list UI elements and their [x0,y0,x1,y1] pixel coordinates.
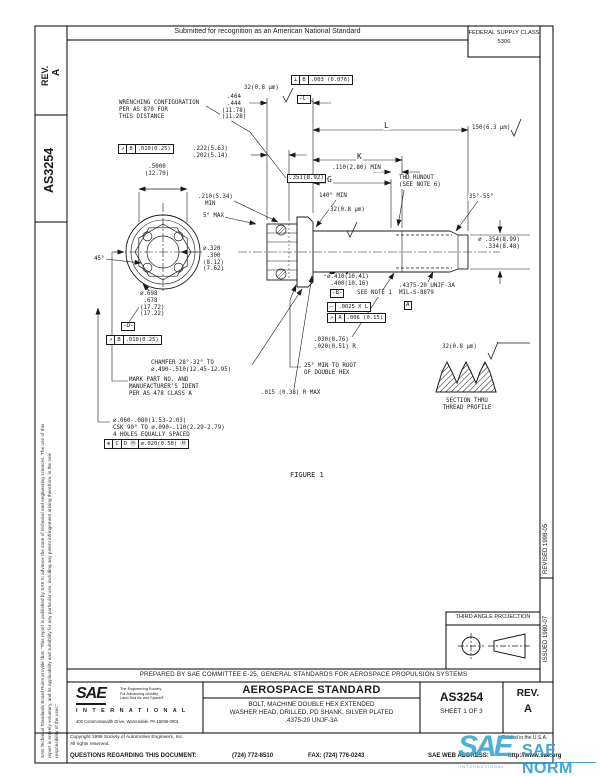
holes-note: ⌀.060-.080(1.53-2.03) CSK 90° TO ⌀.090-.… [112,418,226,438]
doc-number-vertical: AS3254 [42,148,56,193]
sae-norm-watermark: SAE INTERNATIONAL SAE NORM [438,736,600,776]
titleblock-rev-value: A [503,703,553,715]
datum-c: -C- [297,95,311,104]
watermark-international: INTERNATIONAL [460,764,505,769]
document-number: AS3254 [420,690,503,704]
angle-35-55: 35°-55° [468,194,494,201]
fcf-position-holes-cell: D Ⓜ [121,439,139,449]
dim-G: G [326,175,333,184]
fcf-perpendicularity-cell: .003 (0.076) [308,75,354,85]
document-title-line3: .4375-20 UNJF-3A [203,717,420,724]
sae-logo-international: I N T E R N A T I O N A L [76,708,187,714]
see-note-1: SEE NOTE 1 [356,290,393,297]
copyright-line2: All rights reserved. [70,742,110,747]
fcf-runout-wrench-cell: .010(0.25) [135,144,174,154]
legal-text-line2: report is entirely voluntary, and its ap… [47,453,52,758]
datum-a: A [404,301,412,310]
sae-logo-address: 400 Commonwealth Drive, Warrendale, PA 1… [76,719,179,724]
dim-L: L [383,121,390,130]
angle-45: 45° [93,256,105,263]
datum-b: -B- [330,289,344,298]
dim-210-min: .210(5.34) MIN [197,194,234,208]
dim-698: ⌀.698 .678 (17.72) (17.22) [139,291,165,318]
prepared-by-note: PREPARED BY SAE COMMITTEE E-25, GENERAL … [67,671,540,678]
thread-section [436,362,496,392]
legal-text-line3: responsibility of the user." [54,704,59,758]
fcf-position-holes-cell: ⌀.020(0.50) Ⓜ [138,439,189,449]
finish-32-shank: 32(0.8 μm) [329,207,366,214]
standard-type: AEROSPACE STANDARD [203,684,420,696]
radius-max-note: .015 (0.38) R MAX [260,390,321,397]
mark-note: MARK PART NO. AND MANUFACTURER'S IDENT P… [128,377,200,397]
fcf-straightness-cell: .0025 X L [335,302,371,312]
document-title-line1: BOLT, MACHINE DOUBLE HEX EXTENDED [203,701,420,708]
submitted-note: Submitted for recognition as an American… [67,28,468,35]
watermark-sae-logo: SAE [458,730,511,764]
dim-K: K [356,152,363,161]
dim-across-flats: .5000 (12.70) [141,164,173,178]
revised-date: REVISED 1998-05 [543,524,549,574]
fcf-position-holes: ⊕CD Ⓜ⌀.020(0.50) Ⓜ [105,439,189,449]
wrenching-note: WRENCHING CONFIGURATION PER AS 870 FOR T… [118,100,200,120]
sae-logo-tagline: The Engineering Society For Advancing Mo… [120,687,200,701]
datum-d: -D- [121,322,135,331]
federal-supply-class: FEDERAL SUPPLY CLASS 5306 [468,29,540,46]
sheet-number: SHEET 1 OF 3 [420,708,503,715]
legal-text-line1: SAE Technical Standards Board Rules prov… [40,424,45,758]
dim-320: ⌀.320 .300 (8.12) (7.62) [202,246,225,273]
third-angle-projection-label: THIRD ANGLE PROJECTION [446,614,540,620]
fsc-label: FEDERAL SUPPLY CLASS [468,29,540,38]
questions-fax: FAX: (724) 776-0243 [308,753,364,759]
fcf-perpendicularity: ⊥B.003 (0.076) [292,75,353,85]
dim-wrench-dia: .351(8.92) [287,174,326,183]
thread-callout: .4375-20 UNJF-3A MIL-S-8879 [398,283,456,297]
questions-phone: (724) 772-8510 [232,753,273,759]
third-angle-symbol [458,633,532,659]
rev-value-vertical: A [51,69,62,76]
watermark-rule [522,762,596,763]
fcf-runout-thread-cell: .006 (0.15) [344,313,386,323]
finish-32-head: 32(0.8 μm) [243,85,280,92]
titleblock-rev-label: REV. [503,688,553,699]
dim-head-height: .464 .444 (11.78) (11.28) [220,94,248,121]
dim-030-r: .030(0.76) .020(0.51) R [313,337,357,351]
rev-label-vertical: REV. [40,66,50,86]
chamfer-note: CHAMFER 28°-32° TO ⌀.490-.510(12.45-12.9… [150,360,232,374]
dim-point: ⌀ .354(8.99) .334(8.48) [477,237,521,251]
thd-runout-note: THD RUNOUT (SEE NOTE 6) [398,175,442,189]
watermark-sae-norm: SAE NORM [522,742,600,776]
fcf-runout-thread: ↗A.006 (0.15) [328,313,386,323]
angle-140-min: 140° MIN [318,193,348,200]
fcf-straightness: —.0025 X L [328,302,371,312]
issued-date: ISSUED 1980-07 [543,616,549,662]
finish-150: 150(6.3 μm) [471,125,511,132]
dim-110-min: .110(2.80) MIN [331,165,382,172]
hex-root-note: 25° MIN TO ROOT OF DOUBLE HEX [303,363,357,377]
fsc-value: 5306 [468,38,540,47]
fcf-runout-head-cell: .010(0.25) [123,335,162,345]
section-label: SECTION THRU THREAD PROFILE [436,398,498,412]
questions-label: QUESTIONS REGARDING THIS DOCUMENT: [70,753,197,759]
copyright-line1: Copyright 1998 Society of Automotive Eng… [70,735,183,740]
dim-410: ⌀.410(10.41) .400(10.16) [326,274,370,288]
fcf-runout-head: ↗B.010(0.25) [107,335,162,345]
drawing-sheet: Submitted for recognition as an American… [0,0,600,776]
document-title-line2: WASHER HEAD, DRILLED, PD SHANK, SILVER P… [203,709,420,716]
figure-drawing [0,0,600,776]
fcf-runout-wrench: ↗B.010(0.25) [119,144,174,154]
angle-5-max: 5° MAX [202,213,225,220]
sae-logo: SAE [76,686,106,705]
finish-32-section: 32(0.8 μm) [441,344,478,351]
dim-wrench-depth: .222(5.63) .202(5.14) [192,146,229,160]
figure-label: FIGURE 1 [289,471,325,479]
